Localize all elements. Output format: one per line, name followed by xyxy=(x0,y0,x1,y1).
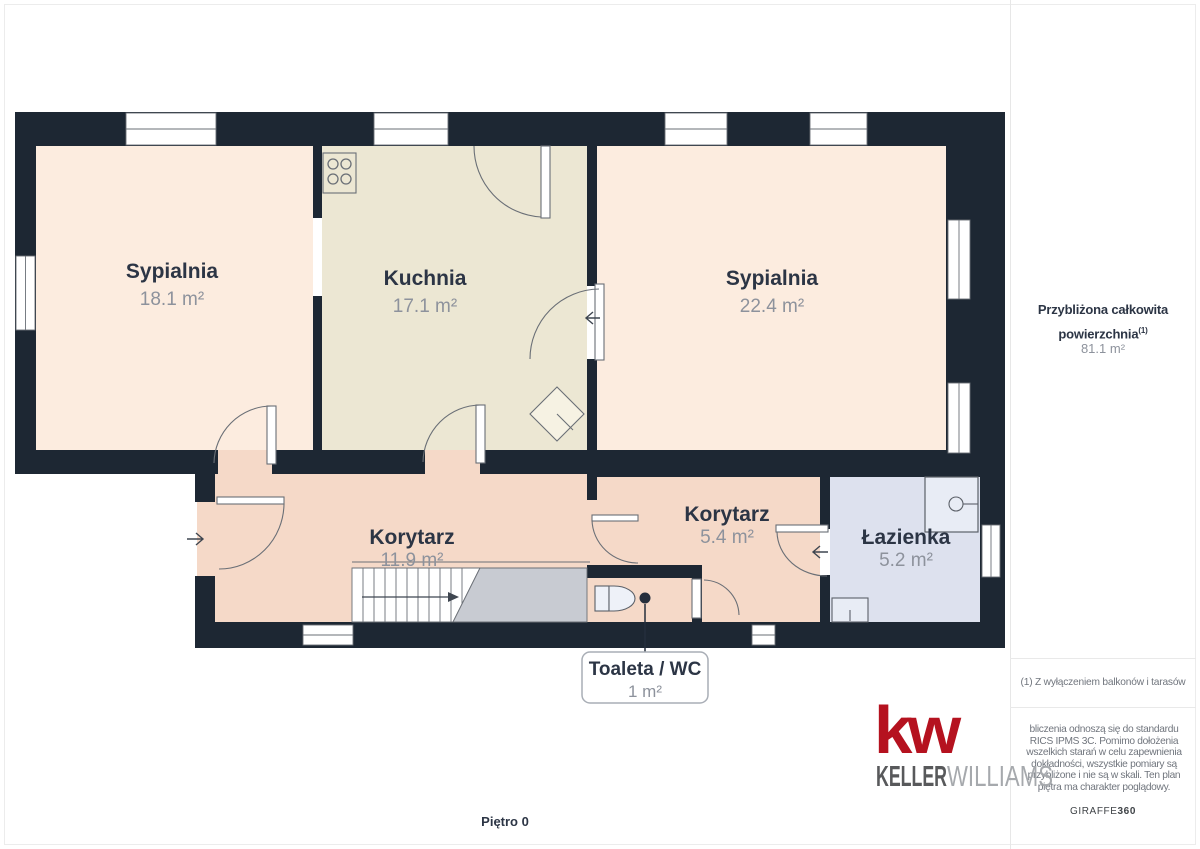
total-area-label-line2: powierzchnia xyxy=(1058,326,1138,341)
kw-name-keller: KELLER xyxy=(876,761,947,793)
footnote-text: (1) Z wyłączeniem balkonów i tarasów xyxy=(1010,677,1196,688)
room-label-kuchnia: Kuchnia xyxy=(384,267,467,290)
room-label-sypialnia-2: Sypialnia xyxy=(726,267,819,290)
room-label-korytarz-2: Korytarz xyxy=(684,503,769,526)
door-leaf xyxy=(776,525,828,532)
room-label-korytarz-1: Korytarz xyxy=(369,526,454,549)
door-leaf xyxy=(692,579,701,618)
room-area-lazienka: 5.2 m² xyxy=(879,550,933,571)
floor-label: Piętro 0 xyxy=(0,814,1010,829)
floorplan-page: Sypialnia 18.1 m² Kuchnia 17.1 m² Sypial… xyxy=(0,0,1200,849)
door-leaf xyxy=(592,515,638,521)
room-fills xyxy=(36,112,980,622)
floor-plan: Sypialnia 18.1 m² Kuchnia 17.1 m² Sypial… xyxy=(0,0,1010,849)
room-label-lazienka: Łazienka xyxy=(862,526,951,549)
room-area-sypialnia-1: 18.1 m² xyxy=(140,289,204,310)
door-leaf xyxy=(541,146,550,218)
callout-title: Toaleta / WC xyxy=(589,659,702,680)
total-area-label-line1: Przybliżona całkowita xyxy=(1038,302,1168,317)
room-label-sypialnia-1: Sypialnia xyxy=(126,260,219,283)
total-area-label: Przybliżona całkowita powierzchnia(1) xyxy=(1010,299,1196,344)
staircase xyxy=(352,562,590,622)
door-leaf xyxy=(595,284,604,360)
giraffe360-logo: GIRAFFE360 xyxy=(1010,806,1196,817)
kw-name-williams: WILLIAMS xyxy=(947,761,1053,793)
toilet-callout: Toaleta / WC 1 m² xyxy=(582,652,708,703)
giraffe360-logo-number: 360 xyxy=(1118,806,1137,817)
room-area-korytarz-1: 11.9 m² xyxy=(380,550,443,571)
door-leaf xyxy=(476,405,485,463)
room-area-sypialnia-2: 22.4 m² xyxy=(740,296,804,317)
callout-anchor-dot xyxy=(640,593,651,604)
kw-mark: kw xyxy=(874,696,962,768)
total-area-value: 81.1 m² xyxy=(1010,341,1196,356)
sidebar-separator xyxy=(1010,658,1196,659)
keller-williams-logo: kw KELLERWILLIAMS xyxy=(872,696,1082,796)
door-leaf xyxy=(217,497,284,504)
callout-area: 1 m² xyxy=(628,682,662,701)
room-area-korytarz-2: 5.4 m² xyxy=(700,527,754,548)
svg-text:KELLERWILLIAMS: KELLERWILLIAMS xyxy=(876,761,1053,793)
toilet-icon xyxy=(595,586,635,611)
total-area-footnote-marker: (1) xyxy=(1138,326,1147,335)
door-leaf xyxy=(267,406,276,464)
giraffe360-logo-name: GIRAFFE xyxy=(1070,806,1118,817)
room-area-kuchnia: 17.1 m² xyxy=(393,296,457,317)
